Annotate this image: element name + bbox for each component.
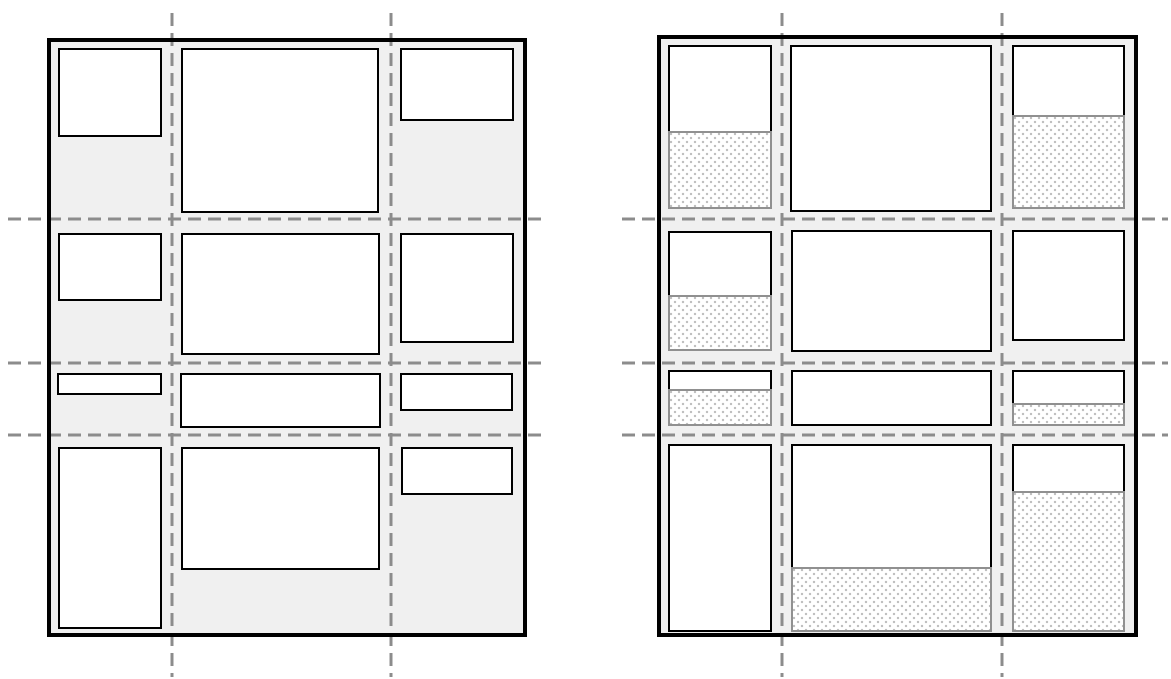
grid-content-sized-item-r2c2 (181, 233, 380, 355)
diagram-canvas (0, 0, 1171, 679)
grid-content-sized-item-r2c1 (58, 233, 162, 301)
grid-area-sized-area-r2c1 (668, 295, 772, 351)
grid-area-sized-item-r3c3 (1012, 370, 1125, 405)
grid-content-sized-item-r4c1 (58, 447, 162, 629)
grid-area-sized-item-r1c2 (790, 45, 992, 212)
grid-area-sized-item-r2c3 (1012, 230, 1125, 341)
grid-content-sized-item-r3c2 (180, 373, 381, 428)
grid-area-sized-item-r4c1 (668, 444, 772, 632)
grid-content-sized-item-r4c3 (401, 447, 513, 495)
grid-content-sized-item-r4c2 (181, 447, 380, 570)
grid-area-sized-item-r4c3 (1012, 444, 1125, 493)
grid-area-sized-area-r1c3 (1012, 115, 1125, 209)
grid-area-sized-item-r3c1 (668, 370, 772, 391)
grid-area-sized-area-r4c2 (791, 567, 992, 632)
grid-content-sized-item-r3c3 (400, 373, 513, 411)
grid-content-sized-item-r3c1 (57, 373, 162, 395)
grid-area-sized-item-r1c1 (668, 45, 772, 133)
grid-area-sized-area-r3c1 (668, 389, 772, 426)
grid-area-sized-area-r3c3 (1012, 403, 1125, 426)
grid-content-sized-item-r1c3 (400, 48, 514, 121)
grid-area-sized-item-r4c2 (791, 444, 992, 569)
grid-area-sized-item-r1c3 (1012, 45, 1125, 117)
grid-area-sized-item-r3c2 (791, 370, 992, 426)
grid-area-sized-item-r2c2 (791, 230, 992, 352)
grid-area-sized-area-r1c1 (668, 131, 772, 209)
grid-content-sized-item-r1c1 (58, 48, 162, 137)
grid-content-sized-item-r2c3 (400, 233, 514, 343)
grid-area-sized-item-r2c1 (668, 231, 772, 297)
grid-area-sized-area-r4c3 (1012, 491, 1125, 632)
grid-content-sized-item-r1c2 (181, 48, 379, 213)
